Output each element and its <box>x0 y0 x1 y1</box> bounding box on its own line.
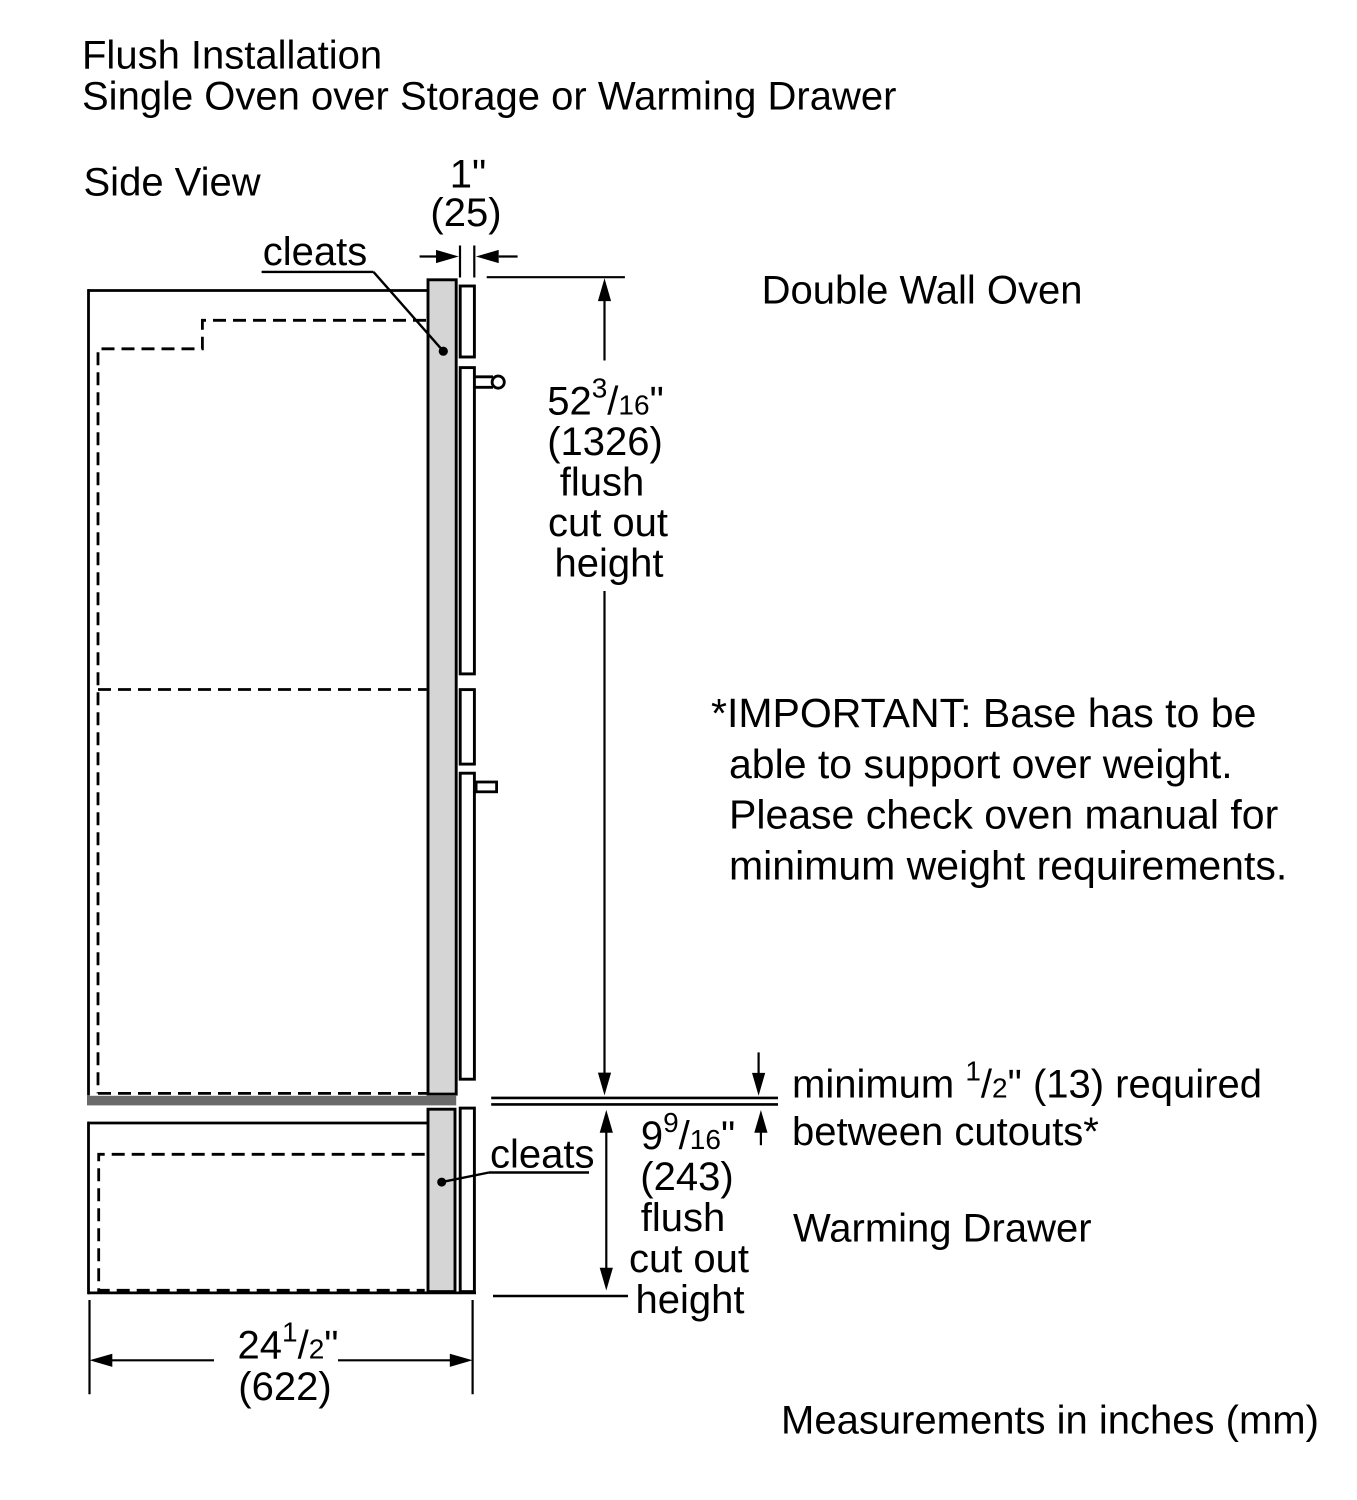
svg-text:between cutouts*: between cutouts* <box>792 1110 1099 1154</box>
svg-text:1": 1" <box>450 152 486 196</box>
svg-text:(25): (25) <box>430 191 501 235</box>
svg-text:minimum weight requirements.: minimum weight requirements. <box>729 842 1287 888</box>
svg-text:Side View: Side View <box>84 160 261 204</box>
svg-text:cleats: cleats <box>263 230 368 274</box>
svg-text:Measurements in inches (mm): Measurements in inches (mm) <box>781 1399 1319 1443</box>
svg-text:(622): (622) <box>238 1365 331 1409</box>
svg-text:Flush Installation: Flush Installation <box>82 34 382 78</box>
svg-text:height: height <box>636 1278 745 1322</box>
svg-text:Warming Drawer: Warming Drawer <box>793 1207 1092 1251</box>
svg-text:cut out: cut out <box>548 501 668 545</box>
svg-text:Please check oven manual for: Please check oven manual for <box>729 792 1278 838</box>
svg-text:height: height <box>555 542 664 586</box>
svg-text:cut out: cut out <box>629 1237 749 1281</box>
svg-text:flush: flush <box>560 461 645 505</box>
svg-text:minimum 1/2" (13) required: minimum 1/2" (13) required <box>792 1056 1262 1107</box>
svg-text:(243): (243) <box>640 1155 733 1199</box>
svg-text:99/16": 99/16" <box>641 1107 735 1158</box>
svg-text:Single Oven over Storage or Wa: Single Oven over Storage or Warming Draw… <box>82 74 896 118</box>
svg-text:flush: flush <box>641 1196 726 1240</box>
svg-text:cleats: cleats <box>490 1133 595 1177</box>
svg-text:Double Wall Oven: Double Wall Oven <box>762 268 1083 312</box>
svg-text:able to support over weight.: able to support over weight. <box>729 741 1233 787</box>
svg-text:(1326): (1326) <box>547 420 663 464</box>
svg-text:*IMPORTANT: Base has to be: *IMPORTANT: Base has to be <box>711 690 1256 736</box>
